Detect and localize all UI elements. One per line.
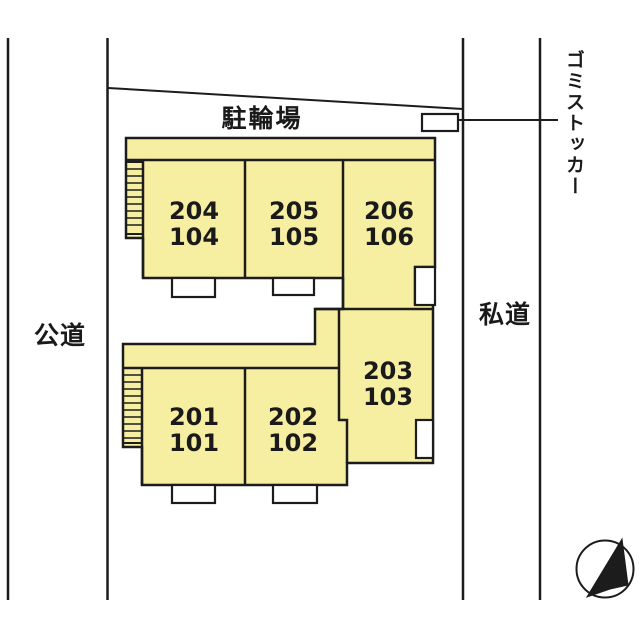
- unit-201-lower: 101: [169, 430, 219, 456]
- unit-202-upper: 202: [268, 404, 318, 430]
- private-road-label: 私道: [479, 302, 531, 328]
- unit-203-alcove: [416, 420, 433, 458]
- unit-201-upper: 201: [169, 404, 219, 430]
- unit-label-204-104: 204 104: [169, 198, 219, 250]
- unit-203-upper: 203: [363, 358, 413, 384]
- unit-206-upper: 206: [364, 198, 414, 224]
- unit-203-lower: 103: [363, 384, 413, 410]
- unit-label-201-101: 201 101: [169, 404, 219, 456]
- unit-label-202-102: 202 102: [268, 404, 318, 456]
- unit-205-lower: 105: [269, 224, 319, 250]
- site-plan-drawing: [0, 0, 640, 640]
- unit-206-lower: 106: [364, 224, 414, 250]
- porch-unit-201: [172, 485, 215, 503]
- unit-206-alcove: [415, 267, 435, 305]
- north-arrow-icon: [577, 539, 634, 598]
- porch-unit-205: [273, 278, 314, 295]
- porch-unit-204: [172, 278, 215, 297]
- unit-204-upper: 204: [169, 198, 219, 224]
- unit-label-203-103: 203 103: [363, 358, 413, 410]
- public-road-label: 公道: [34, 323, 86, 349]
- unit-205-upper: 205: [269, 198, 319, 224]
- bicycle-parking-label: 駐輪場: [221, 106, 302, 132]
- garbage-stocker-label: ゴミストッカー: [561, 50, 588, 210]
- porch-unit-202: [273, 485, 317, 503]
- unit-202-lower: 102: [268, 430, 318, 456]
- unit-label-205-105: 205 105: [269, 198, 319, 250]
- unit-label-206-106: 206 106: [364, 198, 414, 250]
- unit-204-lower: 104: [169, 224, 219, 250]
- garbage-stocker-box: [422, 114, 458, 131]
